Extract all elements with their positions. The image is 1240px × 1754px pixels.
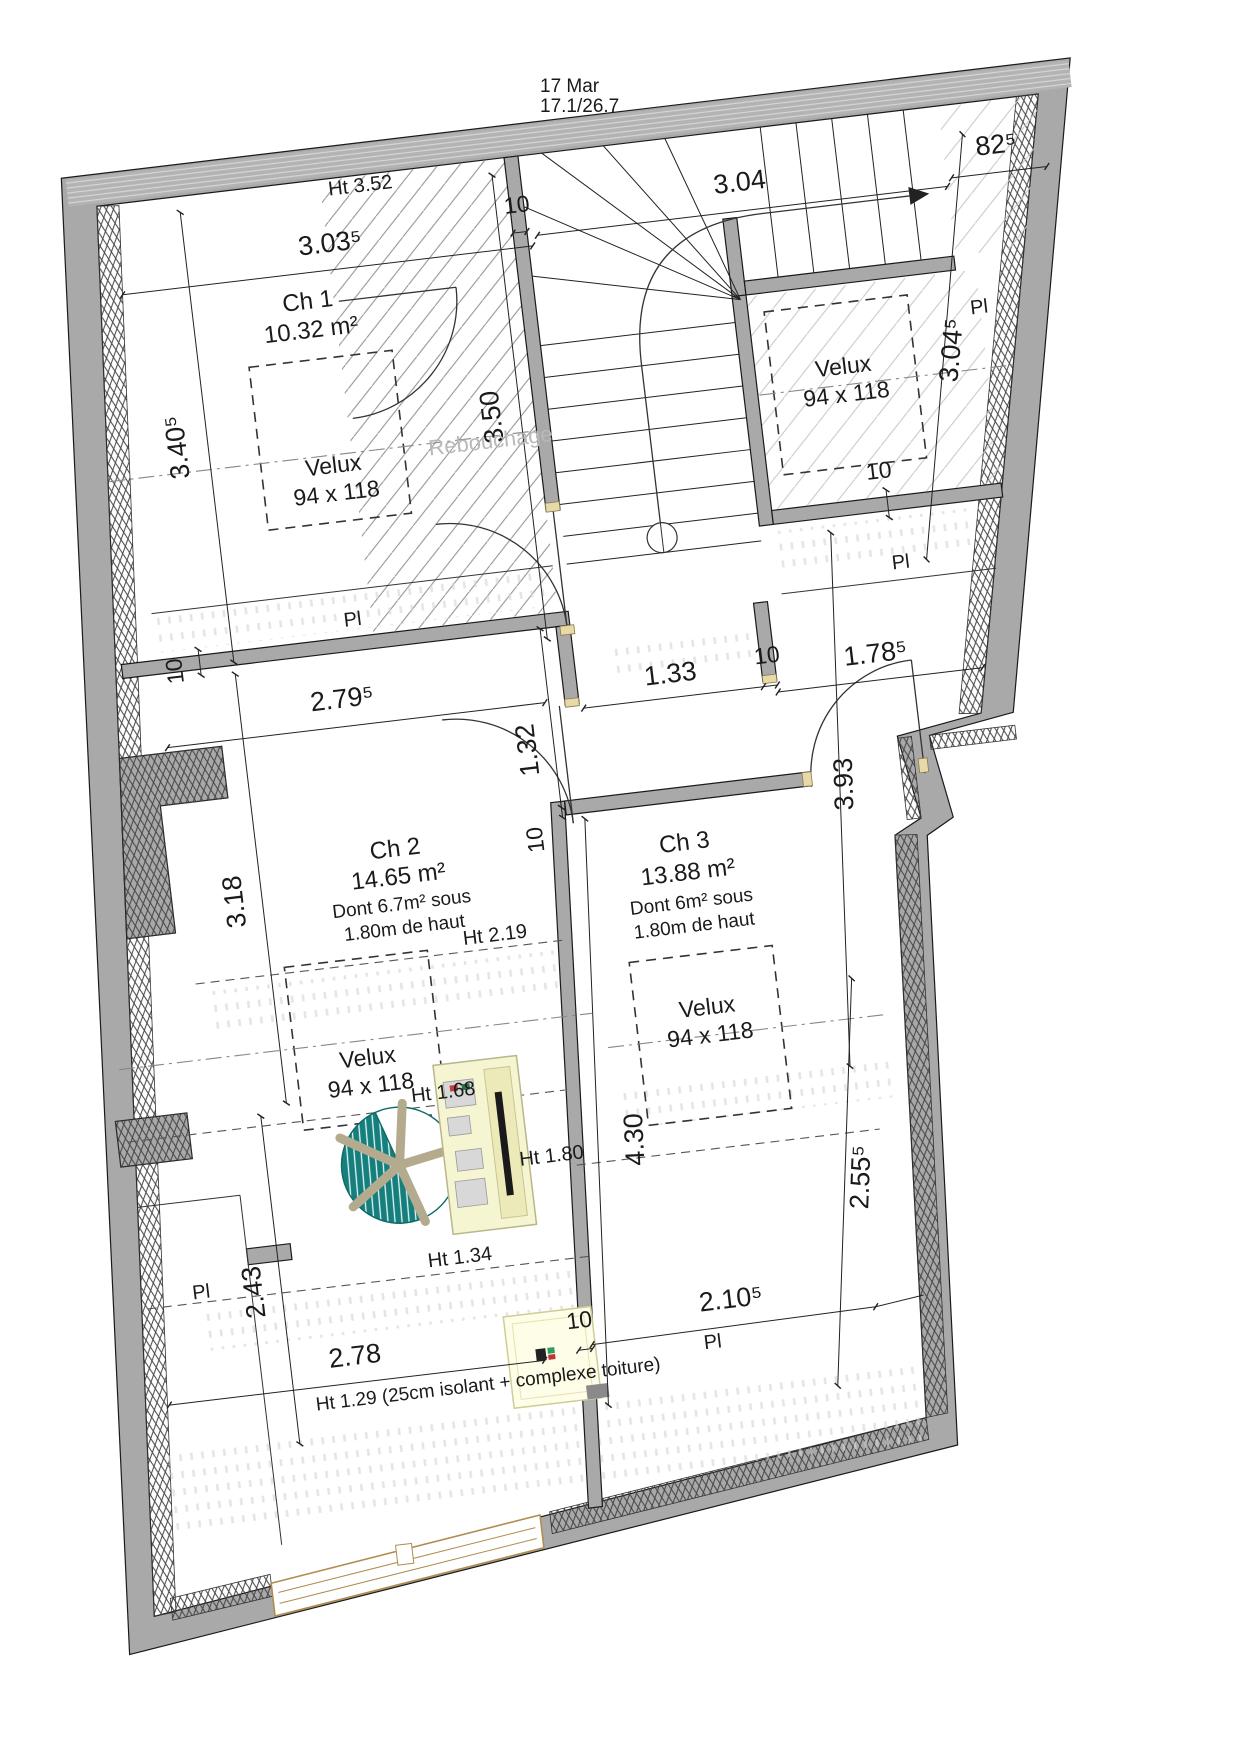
closet-pl-ch1: Pl <box>343 608 363 632</box>
stair-ratio-label: 17.1/26.7 <box>540 96 619 117</box>
velux-ch2-label: Velux <box>338 1041 397 1074</box>
room-ch1-name: Ch 1 <box>281 285 335 318</box>
ch3-north-wall <box>565 772 812 815</box>
dim-10-hall: 10 <box>753 641 781 670</box>
dim-10-ch3wall: 10 <box>521 826 550 854</box>
dim-1-33: 1.33 <box>642 656 698 692</box>
stair-direction-arrow <box>908 185 930 205</box>
closet-pl-corridor: Pl <box>891 551 911 575</box>
height-134: Ht 1.34 <box>427 1243 494 1272</box>
stair-header: 17 Mar 17.1/26.7 <box>540 76 619 117</box>
dim-1-32: 1.32 <box>509 722 545 778</box>
stair-count-label: 17 Mar <box>540 76 600 97</box>
room-ch3-area: 13.88 m² <box>639 853 736 891</box>
dim-3-93: 3.93 <box>828 757 860 810</box>
dim-10-bottom: 10 <box>565 1306 593 1335</box>
dim-2-43: 2.43 <box>236 1264 272 1320</box>
velux-ch2-size: 94 x 118 <box>326 1067 415 1103</box>
dim-82-5: 82⁵ <box>974 127 1018 162</box>
velux-ch3-size: 94 x 118 <box>666 1016 755 1052</box>
labels: 3.03⁵ 10 3.04 82⁵ 3.04⁵ Ht 3.52 Ch 1 10.… <box>63 97 1156 1428</box>
hall-west-wall <box>556 625 579 705</box>
closet-pl-topright: Pl <box>969 295 989 319</box>
side-table <box>503 1306 609 1409</box>
closet-pl-bottom: Pl <box>703 1330 723 1354</box>
room-ch3-name: Ch 3 <box>658 826 712 859</box>
dim-3-04: 3.04 <box>712 164 768 200</box>
dim-2-79-5: 2.79⁵ <box>309 680 376 717</box>
closet-stub-wall <box>246 1244 292 1265</box>
height-219: Ht 2.19 <box>462 920 529 949</box>
dim-3-18: 3.18 <box>216 874 252 930</box>
velux-ch3-label: Velux <box>677 990 736 1023</box>
dim-3-40-5: 3.40⁵ <box>158 414 195 481</box>
dim-10-w4: 10 <box>864 456 892 485</box>
dim-1-78-5: 1.78⁵ <box>842 635 909 672</box>
dim-2-55-5: 2.55⁵ <box>844 1145 876 1210</box>
stair-winder-stub <box>723 218 746 297</box>
dim-2-10-5: 2.10⁵ <box>697 1280 764 1317</box>
dim-3-04-5: 3.04⁵ <box>933 317 969 383</box>
floorplan-page: 3.03⁵ 10 3.04 82⁵ 3.04⁵ Ht 3.52 Ch 1 10.… <box>0 0 1240 1754</box>
closet-pl-bottomleft: Pl <box>191 1281 211 1305</box>
velux-ch1-label: Velux <box>304 449 363 482</box>
dim-10-h1: 10 <box>160 657 189 685</box>
dim-10-stair: 10 <box>502 190 530 219</box>
bottom-window <box>267 1515 548 1616</box>
dim-4-30: 4.30 <box>618 1113 651 1167</box>
floorplan-svg: 3.03⁵ 10 3.04 82⁵ 3.04⁵ Ht 3.52 Ch 1 10.… <box>0 0 1240 1754</box>
dim-2-78: 2.78 <box>327 1338 383 1374</box>
